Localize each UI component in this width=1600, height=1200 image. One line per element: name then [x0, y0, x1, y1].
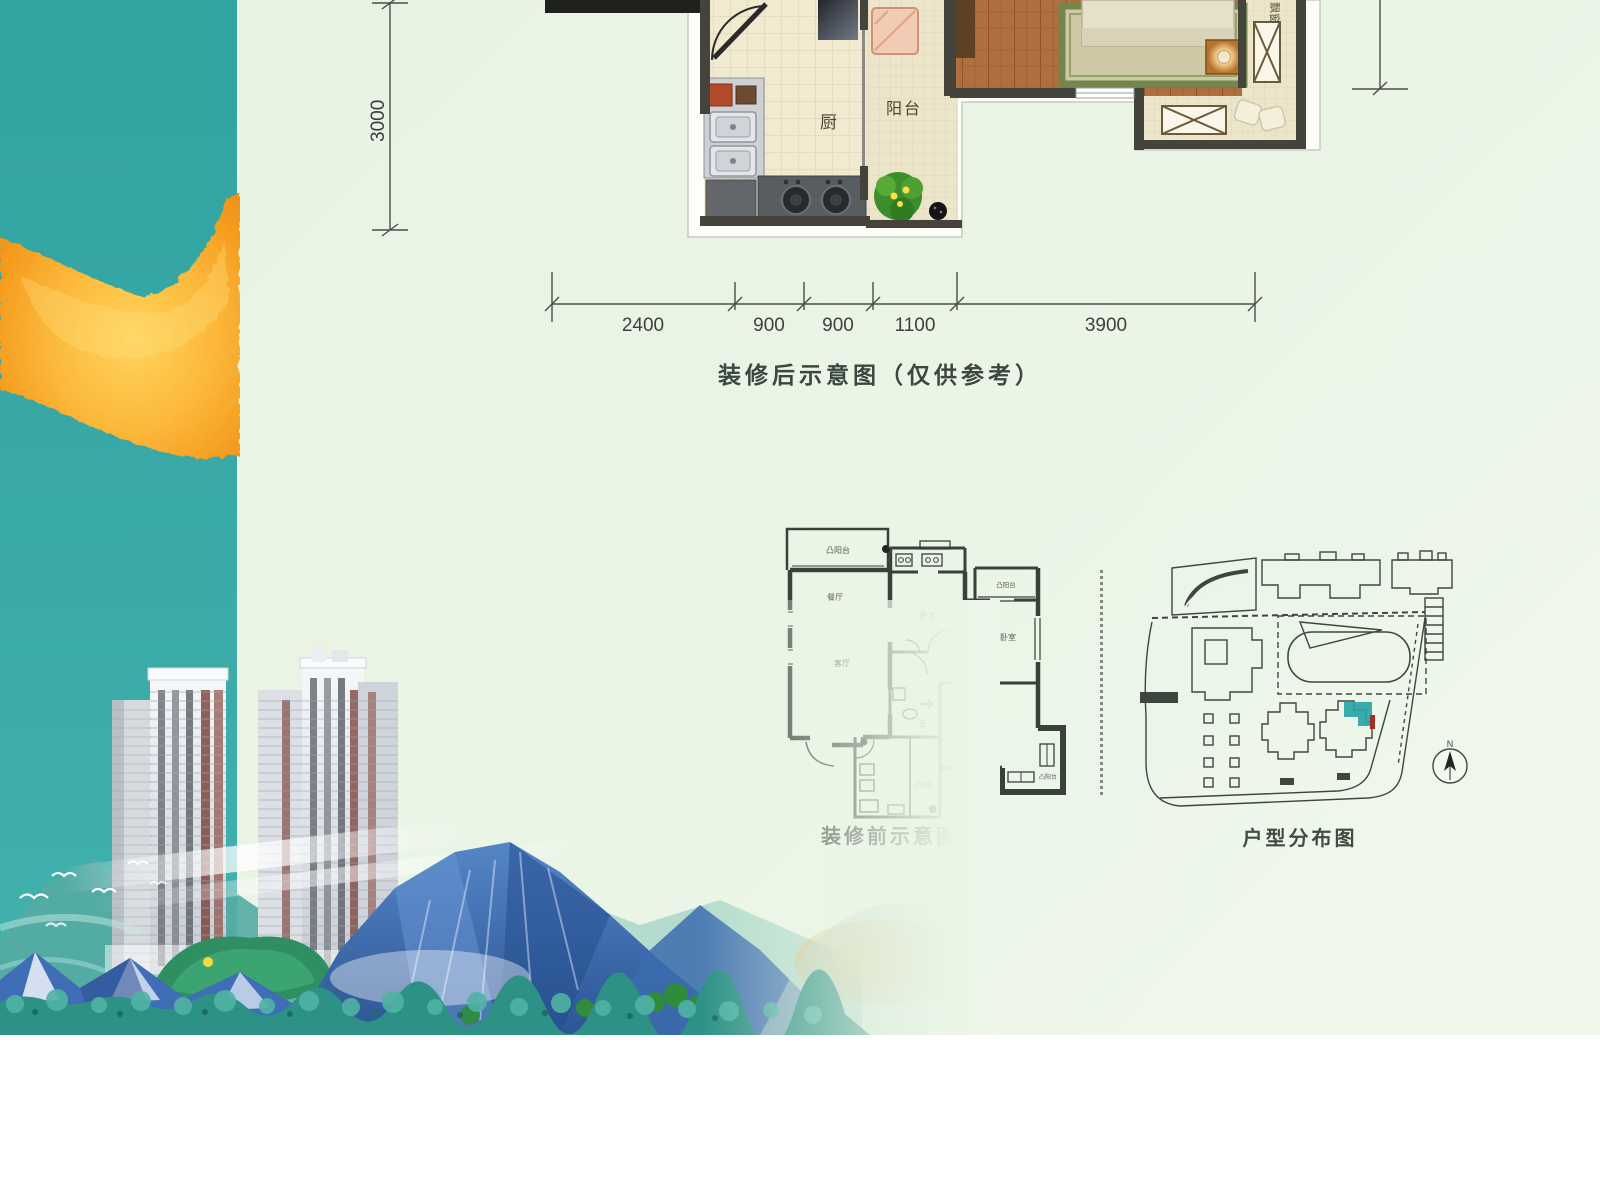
floorplan-after: 厨 阳台 飘窗 3000 2400 900 900 1100 3900	[340, 0, 1420, 345]
svg-text:N: N	[1447, 739, 1454, 749]
real-estate-poster: 厨 阳台 飘窗 3000 2400 900 900 1100 3900 装修后示…	[0, 0, 1600, 1200]
svg-text:3900: 3900	[1085, 315, 1127, 336]
site-small-block	[1280, 778, 1294, 785]
lamp-icon	[1218, 51, 1231, 64]
compass-icon: N	[1433, 739, 1467, 783]
site-small-block	[1337, 773, 1350, 780]
dim-left-3000: 3000	[368, 100, 389, 142]
wardrobe-symbol	[1254, 22, 1280, 82]
kitchen-item	[736, 86, 756, 104]
svg-text:凸阳台: 凸阳台	[826, 545, 850, 555]
kitchen-appliance	[708, 84, 732, 106]
gold-brushstroke	[0, 180, 240, 480]
washing-machine	[872, 8, 918, 54]
site-plan: N	[1125, 540, 1500, 825]
bottom-white-margin	[0, 1035, 1600, 1200]
stool	[929, 202, 947, 220]
cutoff-wall	[545, 0, 713, 13]
dotted-divider	[1100, 570, 1103, 795]
fridge	[818, 0, 858, 40]
svg-text:900: 900	[822, 315, 854, 336]
bay-seat-symbol	[1162, 106, 1226, 134]
site-entry-block	[1140, 692, 1178, 703]
svg-text:凸阳台: 凸阳台	[996, 580, 1016, 589]
dim-bottom-labels: 2400 900 900 1100 3900	[622, 315, 1127, 336]
svg-text:1100: 1100	[895, 315, 936, 336]
svg-text:凸阳台: 凸阳台	[1039, 773, 1057, 781]
kitchen-label: 厨	[820, 113, 837, 132]
sink	[710, 112, 756, 142]
tower-render-left	[105, 668, 235, 985]
svg-text:900: 900	[753, 315, 785, 336]
highlighted-unit	[1344, 702, 1372, 726]
landscape-artwork	[0, 600, 1000, 1035]
landscape-fade	[700, 600, 1000, 1035]
after-plan-caption: 装修后示意图（仅供参考）	[560, 356, 1200, 390]
site-plan-caption: 户型分布图	[1180, 822, 1420, 851]
svg-text:2400: 2400	[622, 315, 664, 336]
unit-marker	[1370, 715, 1375, 729]
sink	[710, 146, 756, 176]
balcony-label: 阳台	[886, 100, 922, 118]
kitchen-cabinet	[706, 180, 756, 222]
svg-text:卧室: 卧室	[1000, 632, 1016, 642]
window-line	[862, 30, 865, 166]
baywindow-label: 飘窗	[1268, 2, 1282, 24]
window-sill	[1076, 88, 1134, 98]
bedroom-cabinet	[955, 0, 975, 58]
